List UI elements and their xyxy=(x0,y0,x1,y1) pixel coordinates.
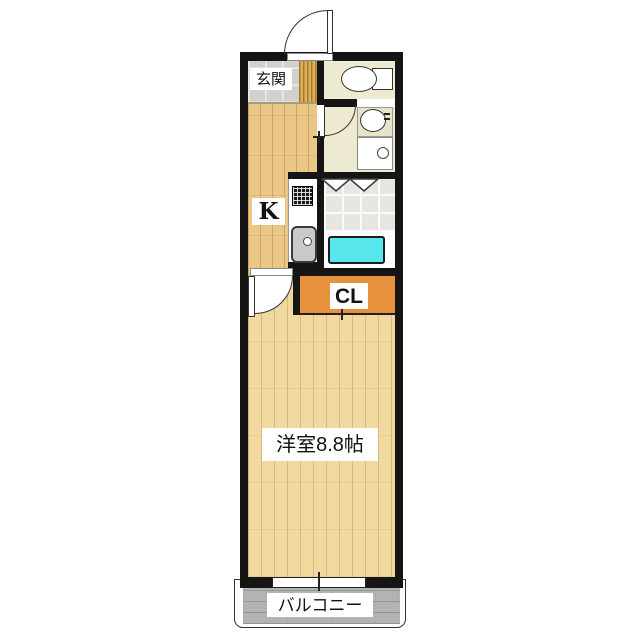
washer-drain-icon xyxy=(377,147,389,159)
wall-right xyxy=(395,52,403,588)
wall-left xyxy=(240,52,248,588)
kitchen-label: K xyxy=(252,198,285,225)
room-door-leaf xyxy=(248,276,255,317)
toilet-bowl xyxy=(341,66,377,92)
room-door-sill xyxy=(250,268,293,276)
closet-sliding-door xyxy=(300,313,395,315)
main-room-floor xyxy=(248,276,395,577)
bathroom-folding-door xyxy=(321,178,379,194)
wall-counter-top xyxy=(288,172,317,179)
basin-faucet-icon xyxy=(384,113,390,115)
basin-faucet-icon-2 xyxy=(384,118,390,120)
floor-plan: 玄関 K CL 洋室8.8帖 バルコニー xyxy=(0,0,640,640)
washroom-door-handle-mark-v xyxy=(318,131,320,143)
toilet-door-sill xyxy=(357,99,395,107)
closet-door-handle-mark xyxy=(341,308,343,320)
entrance-door-leaf xyxy=(327,10,333,54)
balcony-window-center-mark xyxy=(318,572,320,591)
sink-faucet-icon xyxy=(303,237,312,246)
kitchen-stove xyxy=(292,186,313,206)
balcony-label: バルコニー xyxy=(267,593,373,617)
genkan-label: 玄関 xyxy=(250,68,292,90)
wall-bathroom-bottom xyxy=(293,268,395,276)
wash-basin xyxy=(360,109,386,132)
closet-label: CL xyxy=(330,283,368,309)
entrance-door-swing-arc xyxy=(284,10,328,54)
wall-washroom-left xyxy=(317,138,324,172)
main-room-label: 洋室8.8帖 xyxy=(262,428,378,461)
bathtub xyxy=(328,236,385,264)
wall-closet-left xyxy=(293,268,300,315)
entrance-door-sill xyxy=(287,53,333,61)
entry-step-slats xyxy=(299,61,317,103)
genkan-step-edge xyxy=(248,102,317,104)
